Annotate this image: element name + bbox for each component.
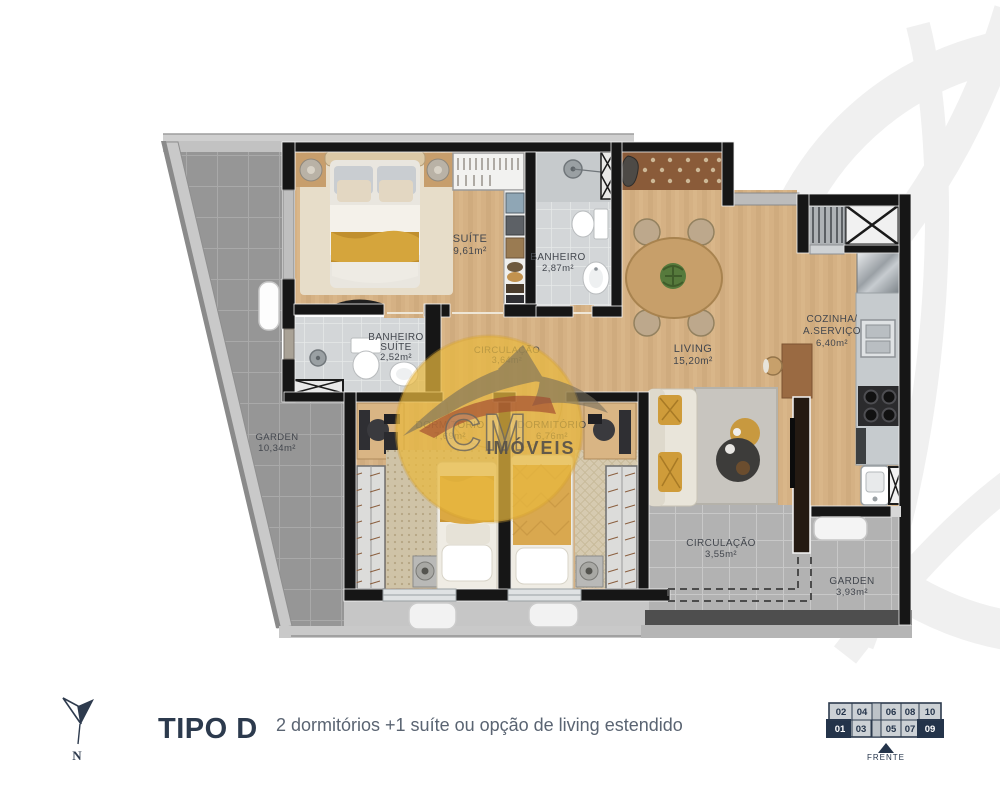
svg-text:08: 08 xyxy=(905,707,916,718)
svg-text:FRENTE: FRENTE xyxy=(867,753,905,762)
svg-text:01: 01 xyxy=(835,724,846,735)
svg-text:05: 05 xyxy=(886,724,897,735)
svg-text:3,55m²: 3,55m² xyxy=(705,549,737,560)
svg-text:9,61m²: 9,61m² xyxy=(453,246,487,257)
svg-text:CIRCULAÇÃO: CIRCULAÇÃO xyxy=(686,536,756,549)
svg-text:GARDEN: GARDEN xyxy=(829,576,874,587)
svg-text:15,20m²: 15,20m² xyxy=(673,356,713,367)
svg-text:IMÓVEIS: IMÓVEIS xyxy=(486,437,575,458)
svg-text:LIVING: LIVING xyxy=(674,343,712,355)
svg-text:2,87m²: 2,87m² xyxy=(542,263,574,274)
svg-text:COZINHA/: COZINHA/ xyxy=(807,314,858,325)
svg-text:SUÍTE: SUÍTE xyxy=(453,232,487,245)
svg-text:TIPO D: TIPO D xyxy=(158,713,258,745)
svg-text:A.SERVIÇO: A.SERVIÇO xyxy=(803,326,861,337)
svg-text:10,34m²: 10,34m² xyxy=(258,443,296,454)
svg-text:GARDEN: GARDEN xyxy=(255,432,298,443)
svg-text:02: 02 xyxy=(836,707,847,718)
svg-text:BANHEIRO: BANHEIRO xyxy=(530,252,585,263)
svg-text:N: N xyxy=(72,748,82,763)
svg-text:09: 09 xyxy=(925,724,936,735)
svg-text:3,93m²: 3,93m² xyxy=(836,587,868,598)
svg-text:2,52m²: 2,52m² xyxy=(380,352,412,363)
svg-text:03: 03 xyxy=(856,724,867,735)
svg-text:2 dormitórios +1 suíte ou opçã: 2 dormitórios +1 suíte ou opção de livin… xyxy=(276,715,683,735)
svg-text:06: 06 xyxy=(886,707,897,718)
svg-text:6,40m²: 6,40m² xyxy=(816,338,848,349)
svg-text:07: 07 xyxy=(905,724,916,735)
svg-text:04: 04 xyxy=(857,707,868,718)
svg-text:10: 10 xyxy=(925,707,936,718)
